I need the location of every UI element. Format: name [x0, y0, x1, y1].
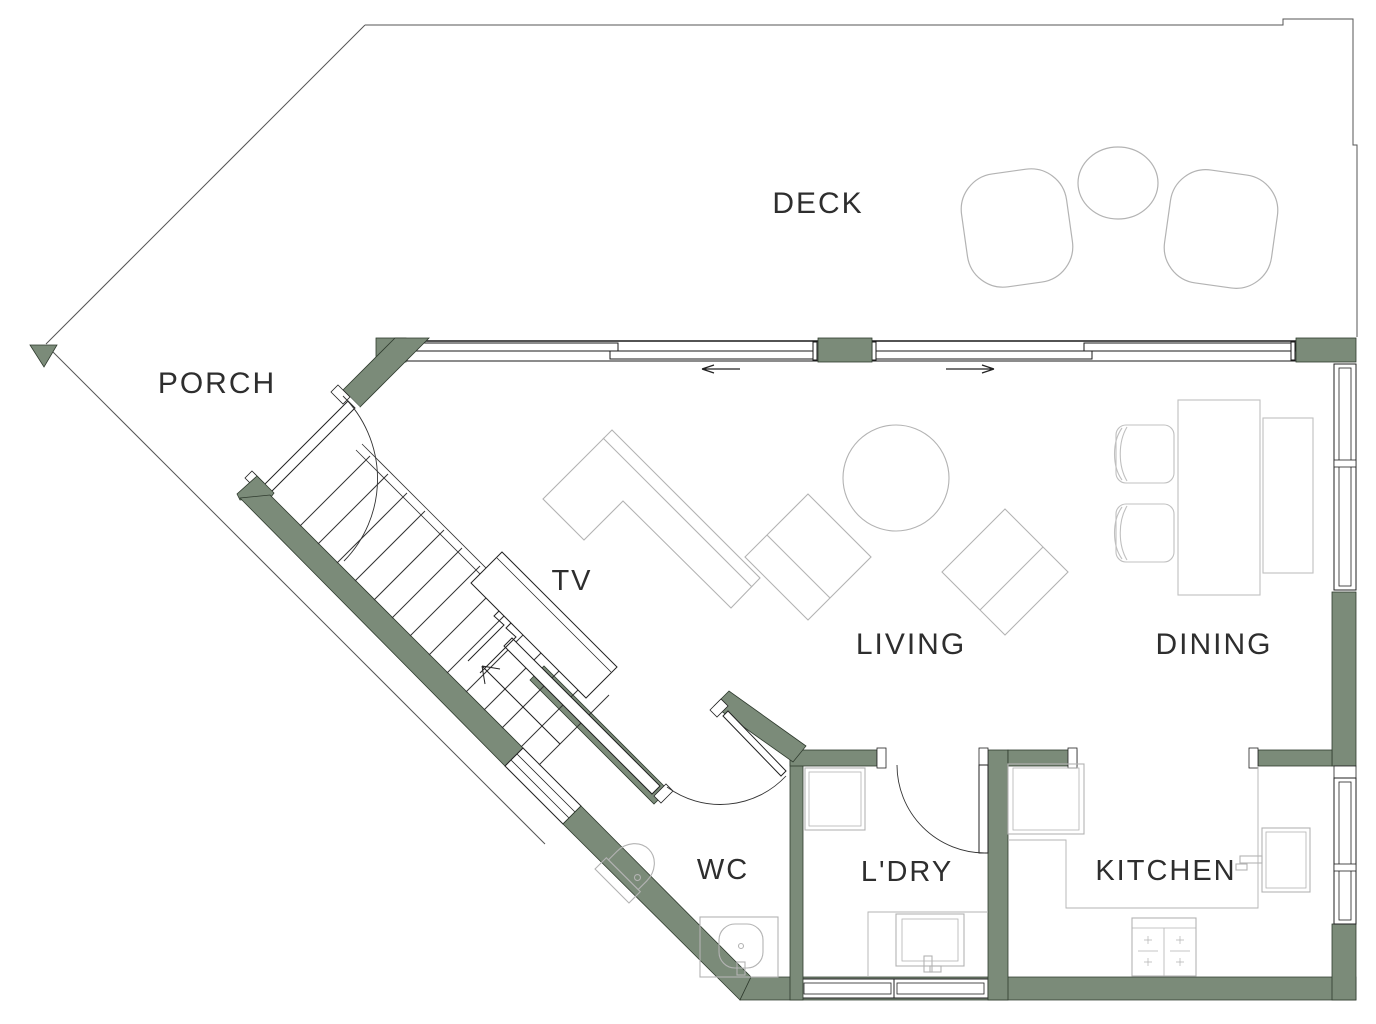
label-porch: PORCH [158, 367, 276, 400]
fridge [1008, 764, 1084, 834]
kitchen-window [1334, 766, 1356, 924]
coffee-table [843, 425, 949, 531]
laundry-tap [924, 956, 932, 972]
north-wall [376, 338, 1356, 373]
ldry-window [800, 979, 988, 998]
ldry-door-leaf [979, 765, 988, 853]
deck-chair-left [957, 164, 1078, 292]
label-dining: DINING [1156, 628, 1273, 661]
label-ldry: L'DRY [861, 856, 953, 888]
east-wall-low [1332, 924, 1356, 1000]
interior-walls [530, 666, 1332, 1000]
corner-marker [30, 345, 57, 367]
label-deck: DECK [772, 187, 863, 220]
dining-table [1178, 400, 1260, 595]
wall-kitchen-top-right [1258, 750, 1332, 766]
sideboard [1263, 418, 1313, 573]
label-tv: TV [551, 565, 592, 597]
dining-chair-2 [1115, 504, 1175, 562]
wall-wc-ldry [790, 750, 803, 1000]
south-wall [740, 977, 1356, 1000]
ldry-door-swing-arc [897, 765, 985, 853]
living-furniture [543, 425, 1068, 635]
label-living: LIVING [856, 628, 966, 661]
label-kitchen: KITCHEN [1095, 855, 1236, 887]
laundry-sink [896, 914, 964, 966]
slide-right-arrow [946, 365, 994, 373]
floor-plan: DECK PORCH TV LIVING DINING WC L'DRY KIT… [0, 0, 1376, 1024]
deck-left-boundary [46, 25, 365, 344]
armchair-2 [942, 509, 1068, 635]
porch-edge-line [46, 345, 545, 844]
wc-side-wall [563, 806, 751, 1000]
wall-pier-east [1296, 338, 1356, 362]
wc-basin-drain [739, 944, 744, 949]
ldry-door [897, 765, 988, 853]
east-wall [1332, 364, 1356, 1000]
dining-furniture [1115, 400, 1314, 595]
entry-door-leaf [262, 401, 355, 494]
wc-door-swing-arc [667, 776, 786, 804]
site-outline [46, 19, 1357, 844]
slide-left-arrow [702, 365, 740, 373]
label-wc: WC [697, 854, 749, 886]
kitchen-sink [1262, 828, 1310, 892]
staircase [300, 444, 660, 794]
deck-boundary [365, 19, 1357, 337]
cooktop [1132, 918, 1196, 976]
deck-table [1078, 147, 1158, 219]
dining-window [1334, 364, 1356, 590]
deck-chair-right [1160, 165, 1283, 293]
dining-chair-1 [1115, 425, 1175, 483]
east-wall-mid [1332, 592, 1356, 766]
wall-ldry-top [790, 750, 877, 766]
wc-window [505, 748, 581, 824]
stair-side-wall [240, 495, 523, 766]
entry-wall-upper [343, 338, 429, 407]
laundry-counter [868, 912, 988, 977]
wall-pier-mid [818, 338, 872, 362]
wall-ldry-kitchen [988, 750, 1008, 1000]
washer [805, 768, 865, 830]
sofa-cushion-line [603, 438, 752, 587]
deck-furniture [957, 147, 1283, 293]
armchair-1 [745, 494, 871, 620]
kitchen-tap [1240, 856, 1262, 863]
armchair-2-back [980, 547, 1043, 610]
